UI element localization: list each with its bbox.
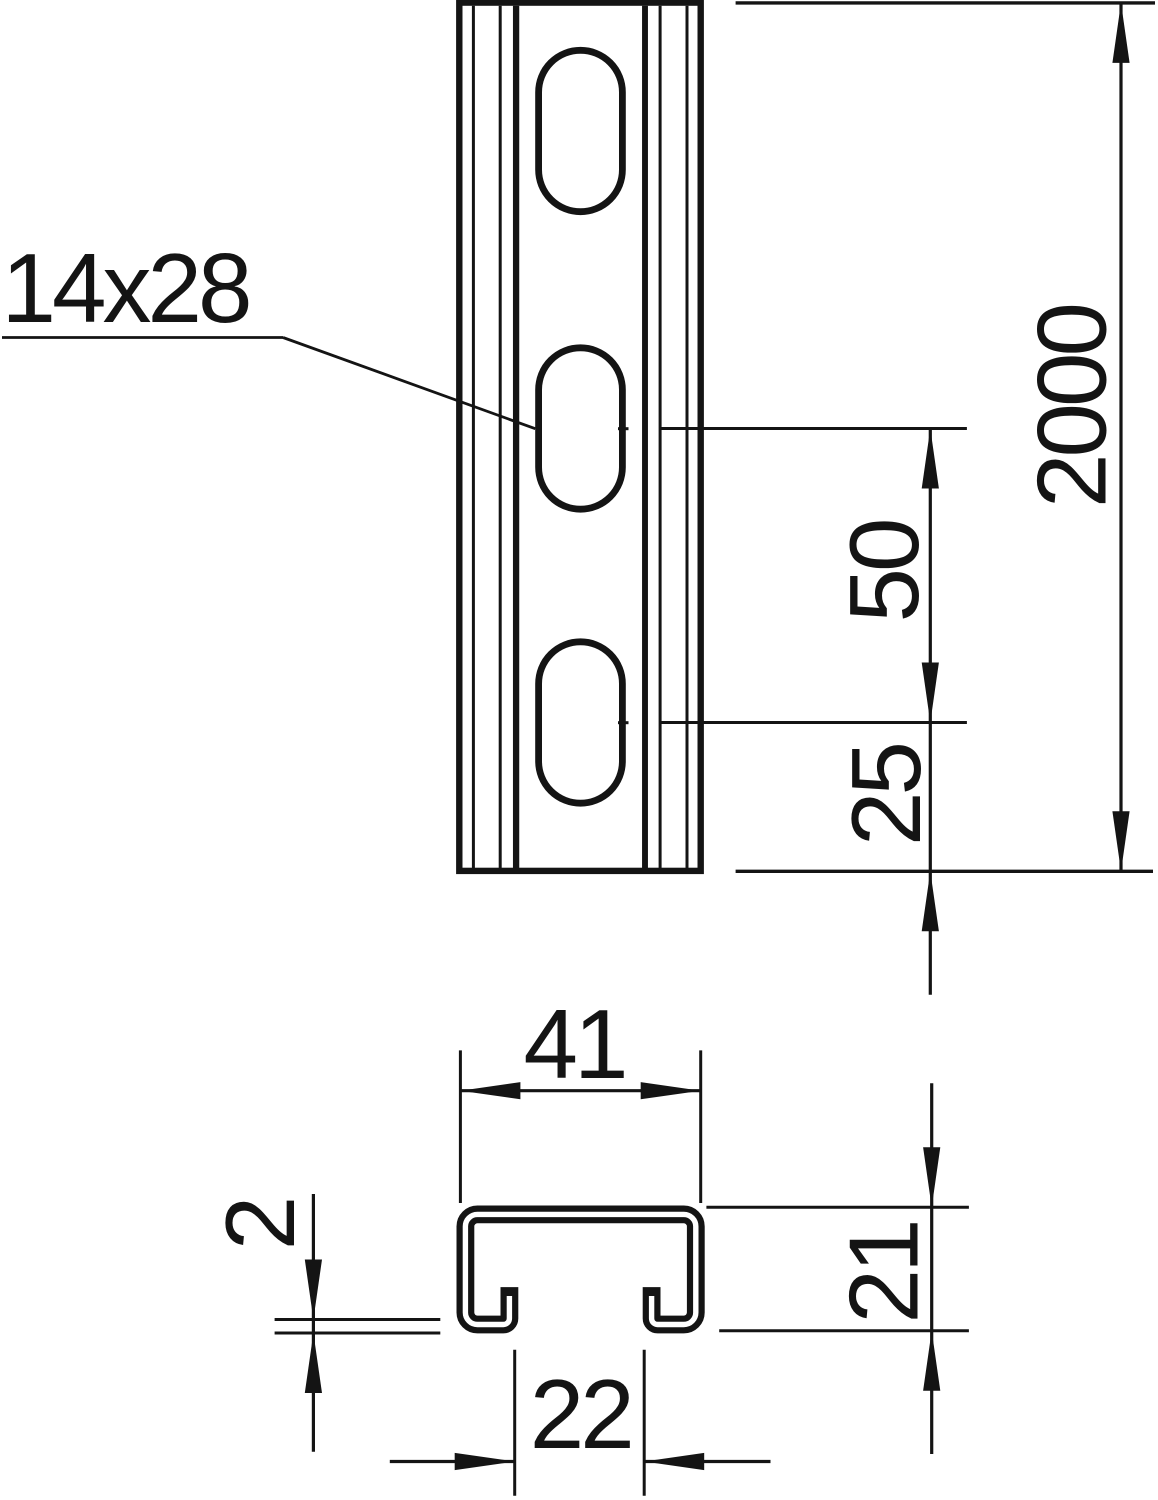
svg-text:14x28: 14x28 (1, 233, 249, 343)
svg-text:25: 25 (831, 745, 941, 847)
svg-text:2000: 2000 (1017, 305, 1127, 508)
svg-text:22: 22 (530, 1359, 631, 1469)
svg-text:21: 21 (828, 1222, 938, 1323)
svg-text:50: 50 (829, 521, 939, 623)
svg-text:41: 41 (523, 989, 624, 1099)
svg-text:2: 2 (205, 1200, 315, 1251)
